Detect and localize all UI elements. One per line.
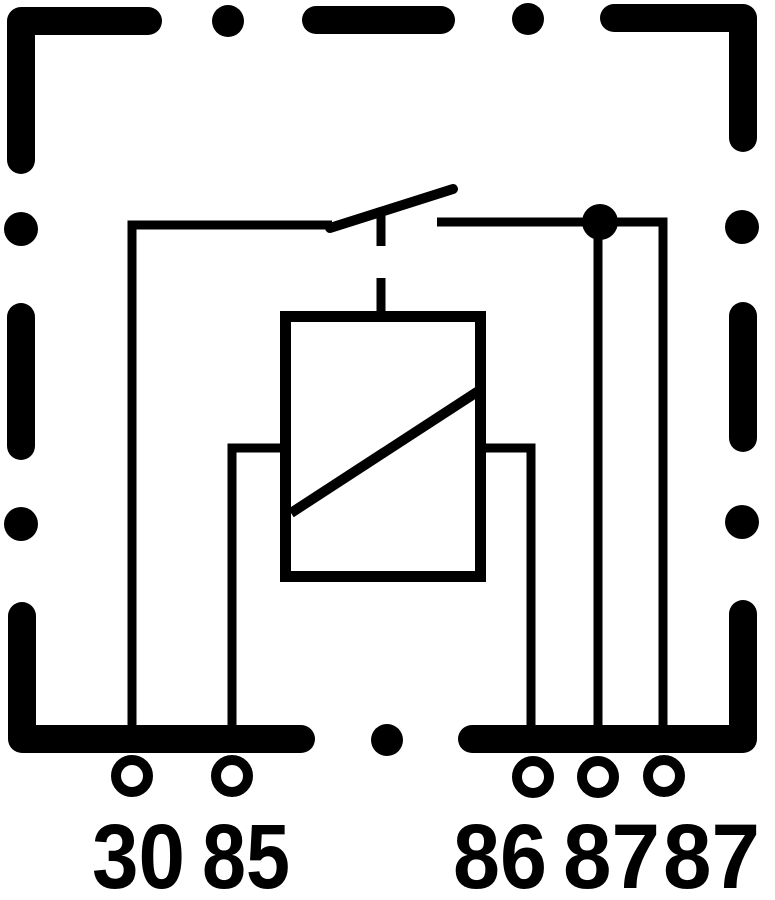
- coil-box: [286, 317, 481, 577]
- terminal-pin-86: [517, 761, 549, 793]
- border-dot-left-2: [4, 507, 38, 541]
- border-corner-bottom-left: [22, 616, 301, 739]
- switch-contact: [330, 189, 453, 316]
- relay-schematic-page: 30 85 86 87 87: [0, 0, 775, 900]
- terminal-pin-87b: [648, 760, 680, 792]
- relay-wiring-diagram: 30 85 86 87 87: [0, 0, 775, 900]
- terminal-label-85: 85: [202, 806, 290, 900]
- terminal-pin-85: [216, 760, 248, 792]
- border-corner-top-left: [21, 21, 148, 160]
- border-dot-top-1: [212, 5, 244, 37]
- terminal-label-86: 86: [453, 806, 547, 900]
- border-dot-left-1: [4, 212, 38, 246]
- border-dot-top-2: [512, 3, 544, 35]
- border-dot-right-1: [725, 210, 759, 244]
- wire-terminal-85: [232, 448, 286, 743]
- terminal-pins: [116, 760, 680, 793]
- terminal-label-87b: 87: [663, 806, 760, 900]
- border-dot-right-2: [725, 505, 759, 539]
- terminal-label-87a: 87: [563, 806, 660, 900]
- junction-dot: [582, 204, 618, 240]
- border-corner-top-right: [614, 18, 743, 138]
- border-dot-bottom: [371, 724, 403, 756]
- relay-coil: [286, 317, 481, 577]
- border-corner-bottom-right: [472, 614, 743, 739]
- wire-terminal-86: [485, 448, 531, 743]
- terminal-pin-30: [116, 760, 148, 792]
- terminal-labels: 30 85 86 87 87: [92, 806, 760, 900]
- switch-blade: [330, 189, 453, 228]
- terminal-label-30: 30: [92, 806, 185, 900]
- terminal-pin-87a: [582, 761, 614, 793]
